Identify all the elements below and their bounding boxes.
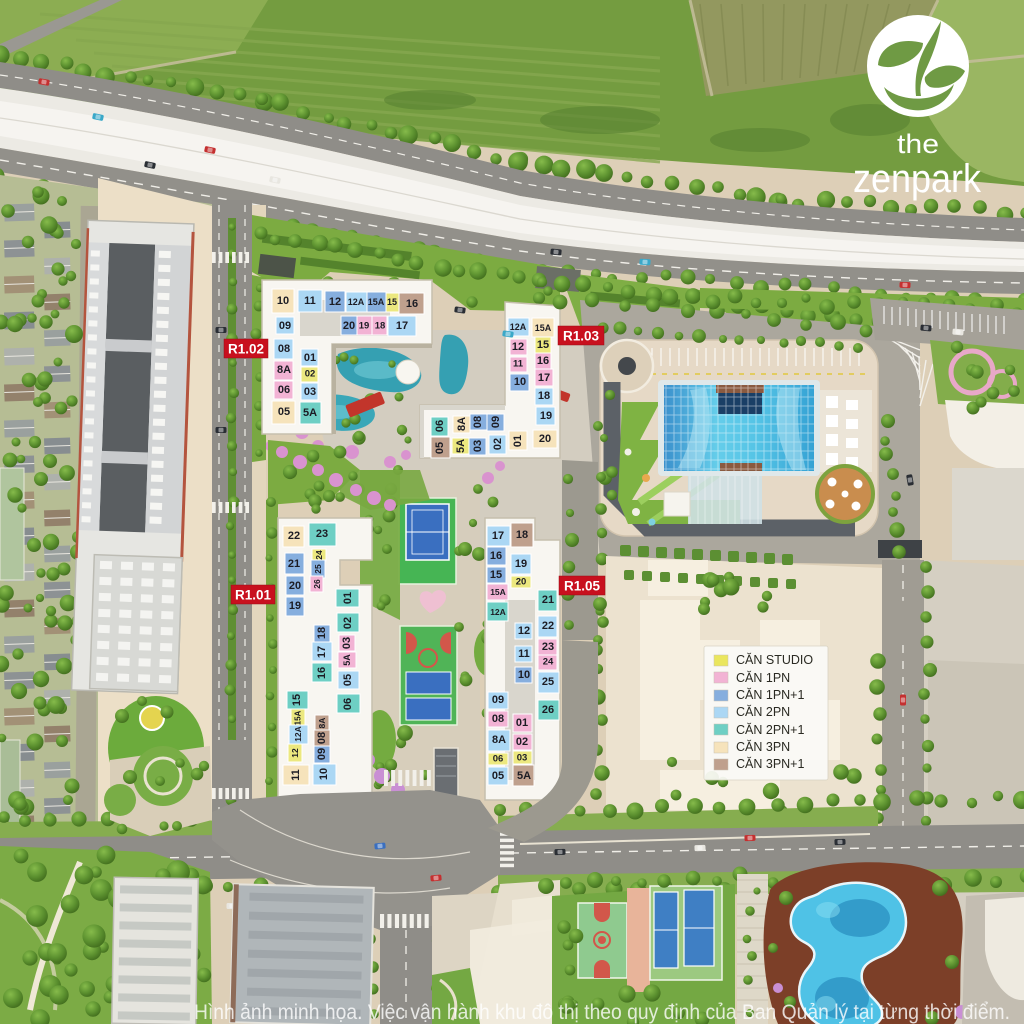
svg-text:09: 09 [490,416,502,428]
svg-text:23: 23 [542,641,554,653]
svg-text:15A: 15A [490,587,506,597]
svg-text:15: 15 [537,339,549,351]
svg-text:20: 20 [516,577,527,588]
svg-text:15A: 15A [294,710,303,725]
svg-text:05: 05 [492,770,504,782]
svg-text:05: 05 [278,406,290,418]
svg-text:CĂN 1PN+1: CĂN 1PN+1 [736,687,804,702]
svg-text:16: 16 [537,355,549,367]
svg-text:16: 16 [490,550,502,562]
svg-text:19: 19 [540,410,552,422]
svg-text:24: 24 [314,550,324,560]
svg-text:20: 20 [539,433,551,445]
svg-text:10: 10 [518,669,530,681]
svg-text:8A: 8A [492,734,506,746]
svg-text:12A: 12A [348,297,365,307]
svg-text:16: 16 [316,667,328,679]
svg-text:06: 06 [278,384,290,396]
svg-text:zenpark: zenpark [853,157,982,201]
svg-text:09: 09 [279,320,291,332]
svg-text:20: 20 [289,580,301,592]
svg-text:01: 01 [516,717,528,729]
svg-text:18: 18 [375,321,386,332]
svg-text:22: 22 [542,620,554,632]
svg-text:17: 17 [492,530,504,542]
svg-text:26: 26 [542,704,554,716]
svg-text:05: 05 [342,674,354,686]
svg-text:02: 02 [516,736,528,748]
svg-text:CĂN 2PN+1: CĂN 2PN+1 [736,722,804,737]
svg-text:17: 17 [396,320,408,332]
svg-text:15A: 15A [535,323,552,333]
svg-text:15: 15 [387,297,397,307]
svg-text:11: 11 [513,359,524,370]
svg-text:01: 01 [304,352,316,364]
svg-text:15: 15 [490,569,502,581]
svg-text:19: 19 [515,558,527,570]
svg-text:08: 08 [278,343,290,355]
svg-text:8A: 8A [277,364,291,376]
svg-text:01: 01 [342,592,354,604]
svg-text:8A: 8A [317,718,327,729]
svg-text:R1.02: R1.02 [228,342,264,357]
svg-text:10: 10 [277,295,289,307]
svg-text:18: 18 [516,529,528,541]
svg-text:20: 20 [343,320,355,332]
svg-text:10: 10 [318,768,330,780]
svg-text:11: 11 [304,295,316,307]
svg-text:15A: 15A [368,297,385,307]
svg-text:03: 03 [517,753,528,764]
svg-text:25: 25 [313,564,323,574]
svg-text:12A: 12A [510,322,527,332]
svg-text:06: 06 [493,754,504,765]
svg-text:the: the [897,129,939,159]
svg-text:19: 19 [359,321,370,332]
svg-text:02: 02 [342,617,354,629]
svg-text:22: 22 [288,530,300,542]
svg-text:09: 09 [316,748,328,760]
svg-text:CĂN 3PN+1: CĂN 3PN+1 [736,756,804,771]
svg-text:02: 02 [492,438,504,450]
svg-text:5A: 5A [517,770,531,782]
svg-text:02: 02 [305,369,316,380]
svg-text:18: 18 [316,627,328,639]
svg-text:12: 12 [329,296,341,308]
svg-text:11: 11 [518,648,530,660]
svg-text:Hình ảnh minh họa. Việc vận hà: Hình ảnh minh họa. Việc vận hành khu đô … [194,1001,1010,1024]
svg-text:26: 26 [312,579,322,589]
svg-text:08: 08 [316,732,328,744]
svg-text:11: 11 [290,769,302,781]
svg-text:12A: 12A [293,726,303,742]
svg-text:CĂN 1PN: CĂN 1PN [736,670,790,685]
svg-text:CĂN STUDIO: CĂN STUDIO [736,652,813,667]
svg-text:8A: 8A [456,417,468,431]
svg-text:R1.03: R1.03 [563,329,600,344]
svg-text:03: 03 [341,637,353,649]
svg-text:5A: 5A [455,439,467,453]
svg-text:08: 08 [492,713,504,725]
svg-text:R1.01: R1.01 [235,588,272,603]
svg-text:23: 23 [316,528,328,540]
svg-text:16: 16 [406,298,418,310]
svg-text:10: 10 [514,376,526,388]
svg-text:17: 17 [316,646,328,658]
svg-text:19: 19 [289,600,301,612]
svg-text:21: 21 [542,594,554,606]
svg-text:21: 21 [288,558,300,570]
svg-text:06: 06 [434,420,446,432]
svg-text:09: 09 [492,694,504,706]
svg-text:CĂN 2PN: CĂN 2PN [736,704,790,719]
svg-text:05: 05 [434,442,446,454]
svg-text:R1.05: R1.05 [564,579,601,594]
svg-text:24: 24 [543,657,554,668]
svg-text:5A: 5A [342,654,352,666]
svg-text:CĂN 3PN: CĂN 3PN [736,739,790,754]
svg-text:18: 18 [538,390,550,402]
svg-text:12: 12 [290,748,300,758]
svg-text:01: 01 [512,435,524,447]
svg-text:03: 03 [472,440,484,452]
svg-text:12A: 12A [490,607,506,617]
svg-text:12: 12 [512,341,524,353]
svg-text:12: 12 [518,625,530,637]
svg-text:5A: 5A [303,407,317,419]
svg-text:17: 17 [538,372,550,384]
svg-text:03: 03 [304,386,316,398]
svg-text:25: 25 [542,676,554,688]
svg-text:15: 15 [291,694,303,706]
svg-text:06: 06 [342,698,354,710]
svg-text:08: 08 [472,416,484,428]
